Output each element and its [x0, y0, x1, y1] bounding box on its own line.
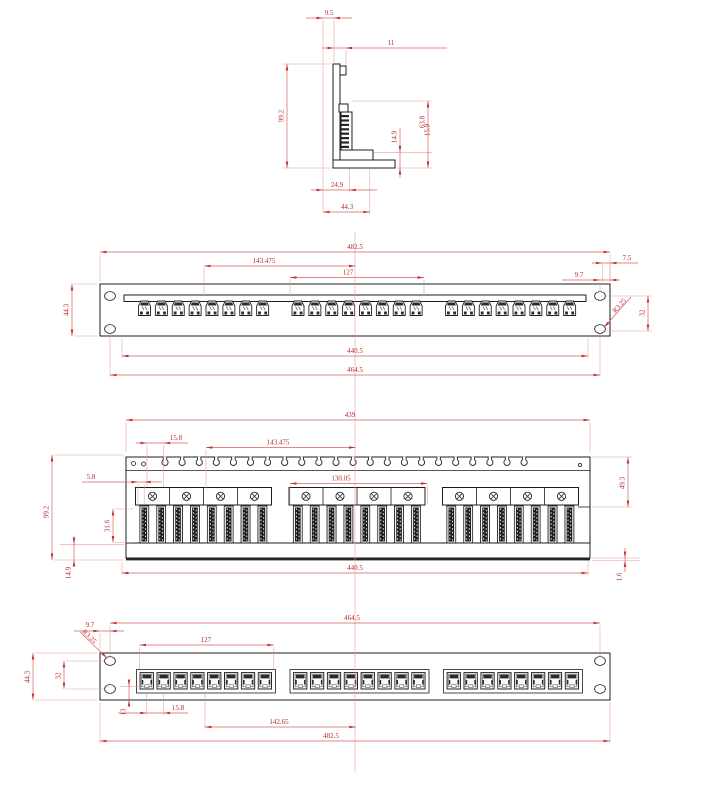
jack [292, 301, 304, 316]
jack [564, 301, 576, 316]
arrowhead-icon [594, 374, 601, 377]
rj45-port [378, 673, 391, 689]
idc-tooth [342, 137, 350, 139]
arrowhead-icon [346, 47, 353, 50]
jack [410, 301, 422, 316]
screw-icon [523, 492, 531, 500]
arrowhead-icon [627, 501, 630, 508]
idc-block [497, 506, 506, 543]
dimension-label: 130.05 [331, 475, 351, 483]
jack [172, 301, 184, 316]
rj45-port [224, 673, 237, 689]
idc-block [310, 506, 319, 543]
arrowhead-icon [205, 726, 212, 729]
arrowhead-icon [100, 251, 107, 254]
screw-icon [557, 492, 565, 500]
dimension-label: 5.8 [87, 473, 96, 481]
arrowhead-icon [164, 712, 171, 715]
dimension-label: 44.3 [341, 203, 354, 211]
arrowhead-icon [32, 653, 35, 660]
dimension-label: 31.6 [104, 519, 112, 532]
screw-icon [148, 492, 156, 500]
arrowhead-icon [63, 661, 66, 668]
idc-tooth [342, 133, 350, 135]
dimension-label: 44.3 [24, 670, 32, 683]
idc-block [174, 506, 183, 543]
tray-lip [126, 558, 590, 560]
dimension-label: 1.6 [616, 572, 624, 581]
arrowhead-icon [647, 296, 650, 303]
jack [223, 301, 235, 316]
rj45-port [140, 673, 153, 689]
dimension-label: 15.9 [424, 123, 432, 136]
jack [343, 301, 355, 316]
arrowhead-icon [126, 419, 133, 422]
idc-block [140, 506, 149, 543]
dimension-label: 482.5 [347, 243, 363, 251]
jack [446, 301, 458, 316]
top-tab [340, 66, 346, 75]
arrowhead-icon [94, 630, 101, 633]
dimension-label: 143.475 [253, 257, 276, 265]
dimension-label: 7.5 [623, 254, 632, 262]
arrowhead-icon [164, 442, 171, 445]
idc-block [361, 506, 370, 543]
rj45-port [565, 673, 578, 689]
idc-block [548, 506, 557, 543]
arrowhead-icon [427, 101, 430, 108]
dimension-label: 440.5 [347, 347, 363, 355]
dimension-label: 14.9 [65, 566, 73, 579]
arrowhead-icon [627, 457, 630, 464]
rj45-port [395, 673, 408, 689]
screw-icon [370, 492, 378, 500]
dimension-label: 11 [388, 39, 395, 47]
arrowhead-icon [594, 622, 601, 625]
arrowhead-icon [71, 330, 74, 337]
dimension-label: 9.5 [325, 9, 334, 17]
arrowhead-icon [204, 265, 211, 268]
rj45-port [294, 673, 307, 689]
arrowhead-icon [610, 279, 617, 282]
arrowhead-icon [582, 355, 589, 358]
screw-icon [302, 492, 310, 500]
arrowhead-icon [51, 554, 54, 561]
rj45-port [310, 673, 323, 689]
idc-block [447, 506, 456, 543]
idc-tooth [342, 115, 350, 117]
rj45-port [412, 673, 425, 689]
rj45-port [208, 673, 221, 689]
rj45-port [191, 673, 204, 689]
jack [462, 301, 474, 316]
arrowhead-icon [140, 644, 147, 647]
arrowhead-icon [399, 168, 402, 175]
idc-block [207, 506, 216, 543]
upper-block [339, 104, 348, 112]
rj45-port [258, 673, 271, 689]
arrowhead-icon [647, 325, 650, 332]
base-plate-section [333, 160, 395, 168]
arrowhead-icon [604, 740, 611, 743]
idc-block [293, 506, 302, 543]
jack [376, 301, 388, 316]
bottom-tray [126, 543, 590, 558]
arrowhead-icon [110, 374, 117, 377]
dimension-label: 32 [55, 672, 63, 680]
dimension-label: 127 [343, 269, 354, 277]
dimension-label: 99.2 [278, 109, 286, 122]
idc-block [565, 506, 574, 543]
dimension-label: 44.3 [63, 303, 71, 316]
jack [155, 301, 167, 316]
idc-block [224, 506, 233, 543]
idc-tooth [342, 124, 350, 126]
jack [257, 301, 269, 316]
arrowhead-icon [206, 446, 213, 449]
rj45-port [447, 673, 460, 689]
rj45-port [241, 673, 254, 689]
dimension-label: 9.7 [575, 271, 584, 279]
dimension-label: 99.2 [43, 505, 51, 518]
patch-panel-technical-drawing: 9.51124.944.3482.5143.4751279.77.5440.54… [0, 0, 705, 787]
jack [309, 301, 321, 316]
dimension-label: 15.8 [172, 704, 185, 712]
arrowhead-icon [122, 355, 129, 358]
arrowhead-icon [582, 572, 589, 575]
dimension-label: 142.65 [269, 718, 289, 726]
rj45-port [531, 673, 544, 689]
jack [240, 301, 252, 316]
faceplate-section [333, 64, 340, 168]
arrowhead-icon [349, 265, 356, 268]
arrowhead-icon [286, 162, 289, 169]
idc-block [411, 506, 420, 543]
dimension-label: 15.8 [170, 434, 183, 442]
arrowhead-icon [110, 630, 117, 633]
dimension-label: R3.25 [611, 296, 629, 314]
screw-icon [216, 492, 224, 500]
jack [139, 301, 151, 316]
arrowhead-icon [112, 536, 115, 543]
rear-view [126, 457, 590, 561]
jack [530, 301, 542, 316]
dimension-label: 127 [201, 636, 212, 644]
arrowhead-icon [317, 17, 324, 20]
dimension-label: 24.9 [331, 181, 344, 189]
arrowhead-icon [349, 446, 356, 449]
rj45-port [174, 673, 187, 689]
arrowhead-icon [323, 211, 330, 214]
idc-block [514, 506, 523, 543]
arrowhead-icon [100, 740, 107, 743]
idc-block [395, 506, 404, 543]
idc-tooth [342, 128, 350, 130]
dimension-label: 464.5 [347, 366, 363, 374]
dimension-label: 32 [639, 309, 647, 317]
dimension-label: 143.475 [267, 439, 290, 447]
jack [393, 301, 405, 316]
arrowhead-icon [596, 262, 603, 265]
dimension-label: 13 [120, 708, 128, 716]
jack [206, 301, 218, 316]
screw-icon [404, 492, 412, 500]
screw-icon [336, 492, 344, 500]
arrowhead-icon [427, 162, 430, 169]
dimension-label: 14.9 [391, 130, 399, 143]
idc-block [481, 506, 490, 543]
arrowhead-icon [51, 455, 54, 462]
arrowhead-icon [32, 694, 35, 701]
arrowhead-icon [112, 509, 115, 516]
screw-icon [489, 492, 497, 500]
idc-block [190, 506, 199, 543]
arrowhead-icon [122, 572, 129, 575]
arrowhead-icon [624, 561, 627, 568]
arrowhead-icon [363, 211, 370, 214]
idc-block [258, 506, 267, 543]
arrowhead-icon [317, 189, 324, 192]
idc-block [241, 506, 250, 543]
jack [547, 301, 559, 316]
idc-block [344, 506, 353, 543]
idc-tooth [342, 119, 350, 121]
arrowhead-icon [610, 262, 617, 265]
rj45-port [548, 673, 561, 689]
jack [189, 301, 201, 316]
arrowhead-icon [73, 560, 76, 567]
rj45-port [361, 673, 374, 689]
arrowhead-icon [584, 419, 591, 422]
arrowhead-icon [604, 251, 611, 254]
arrowhead-icon [399, 146, 402, 153]
rj45-port [464, 673, 477, 689]
arrowhead-icon [128, 700, 131, 707]
rj45-port [515, 673, 528, 689]
screw-icon [250, 492, 258, 500]
rj45-port [344, 673, 357, 689]
dimension-label: 440.5 [347, 564, 363, 572]
arrowhead-icon [71, 284, 74, 291]
rj45-port [327, 673, 340, 689]
screw-icon [455, 492, 463, 500]
rj45-port [481, 673, 494, 689]
arrowhead-icon [63, 683, 66, 690]
arrowhead-icon [267, 644, 274, 647]
jack [326, 301, 338, 316]
arrowhead-icon [594, 279, 601, 282]
idc-tooth [342, 141, 350, 143]
arrowhead-icon [290, 276, 297, 279]
idc-block [531, 506, 540, 543]
arrowhead-icon [141, 442, 148, 445]
arrowhead-icon [334, 17, 341, 20]
arrowhead-icon [418, 276, 425, 279]
jack [360, 301, 372, 316]
idc-block [378, 506, 387, 543]
jack [513, 301, 525, 316]
dimension-label: 482.5 [323, 732, 339, 740]
arrowhead-icon [328, 47, 335, 50]
dimension-label: 464.5 [344, 614, 360, 622]
idc-tooth [342, 146, 350, 148]
screw-icon [182, 492, 190, 500]
arrowhead-icon [73, 538, 76, 545]
arrowhead-icon [624, 552, 627, 559]
jack [496, 301, 508, 316]
arrowhead-icon [286, 64, 289, 71]
rj45-port [157, 673, 170, 689]
idc-block [464, 506, 473, 543]
rj45-port [498, 673, 511, 689]
idc-block [157, 506, 166, 543]
dimension-label: 49.3 [619, 476, 627, 489]
arrowhead-icon [140, 712, 147, 715]
arrowhead-icon [110, 622, 117, 625]
idc-block [327, 506, 336, 543]
dimension-label: 439 [345, 411, 356, 419]
tray-section [340, 150, 373, 160]
arrowhead-icon [349, 189, 356, 192]
drawing-sheet: 9.51124.944.3482.5143.4751279.77.5440.54… [0, 0, 705, 787]
jack [479, 301, 491, 316]
